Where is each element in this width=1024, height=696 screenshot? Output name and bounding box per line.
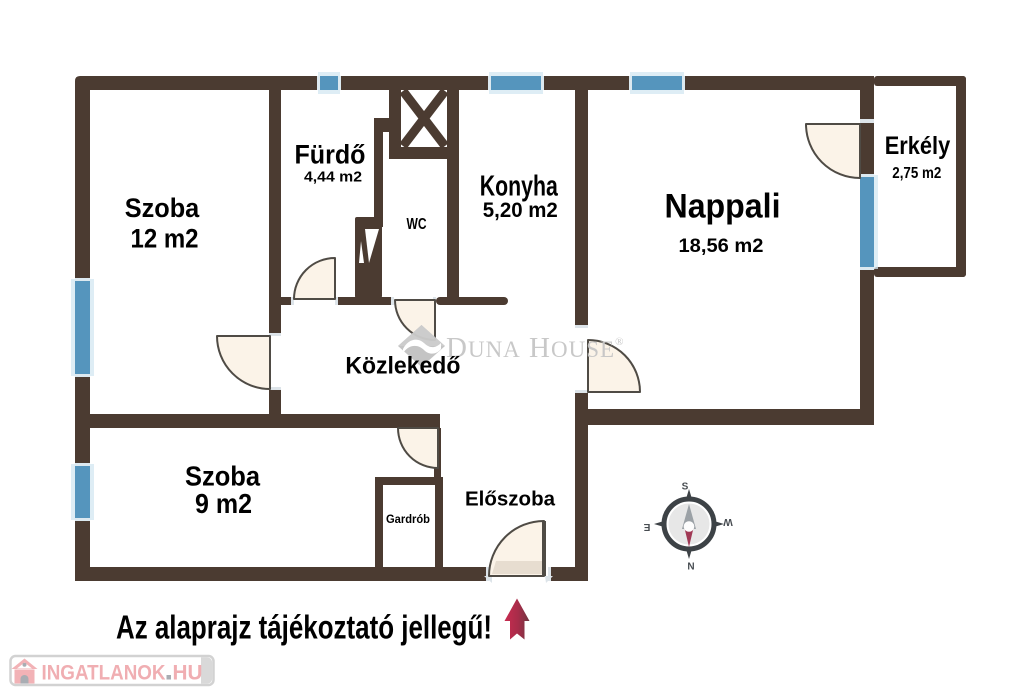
svg-text:4,44 m2: 4,44 m2 — [304, 169, 362, 186]
svg-text:N: N — [687, 562, 694, 573]
svg-text:WC: WC — [407, 216, 427, 233]
svg-text:E: E — [643, 521, 650, 532]
svg-text:Előszoba: Előszoba — [465, 489, 556, 511]
svg-text:Erkély: Erkély — [885, 132, 951, 160]
svg-text:18,56 m2: 18,56 m2 — [679, 235, 764, 257]
svg-text:Nappali: Nappali — [665, 187, 781, 225]
svg-text:2,75 m2: 2,75 m2 — [892, 165, 941, 182]
svg-text:Az alaprajz tájékoztató jelleg: Az alaprajz tájékoztató jellegű! — [116, 609, 492, 646]
svg-text:9 m2: 9 m2 — [195, 488, 252, 519]
svg-text:Szoba: Szoba — [125, 193, 200, 223]
svg-text:Fürdő: Fürdő — [295, 139, 366, 169]
svg-text:S: S — [682, 481, 689, 492]
svg-text:INGATLANOK: INGATLANOK — [42, 661, 166, 685]
svg-text:5,20 m2: 5,20 m2 — [483, 199, 558, 222]
svg-text:HU: HU — [173, 661, 203, 685]
svg-text:Közlekedő: Közlekedő — [345, 353, 460, 380]
svg-text:Gardrób: Gardrób — [386, 512, 430, 526]
svg-text:12 m2: 12 m2 — [131, 223, 199, 253]
svg-text:Konyha: Konyha — [480, 170, 559, 202]
svg-text:W: W — [723, 516, 733, 527]
svg-text:Szoba: Szoba — [185, 461, 261, 492]
svg-text:DUNA HOUSE®: DUNA HOUSE® — [446, 332, 624, 364]
